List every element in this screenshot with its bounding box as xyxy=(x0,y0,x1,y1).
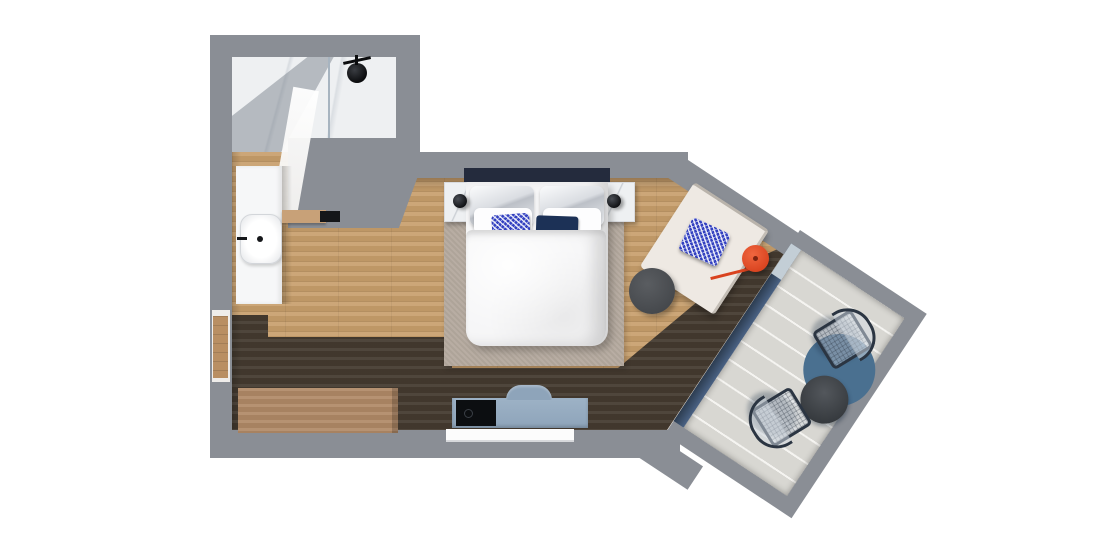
bed-headboard xyxy=(464,168,610,183)
bedside-lamp-right xyxy=(607,194,621,208)
chaise-blue-pillow xyxy=(678,217,731,267)
wall-bathroom-top xyxy=(210,35,420,57)
wall-bottom xyxy=(210,430,680,458)
washbasin xyxy=(240,214,282,264)
ottoman xyxy=(629,268,675,314)
bedside-lamp-left xyxy=(453,194,467,208)
vanity-counter-shadow xyxy=(282,166,292,304)
floor-plan xyxy=(0,0,1100,550)
desk-chair xyxy=(506,385,552,400)
floor-lamp-red xyxy=(742,245,769,272)
shelf-item xyxy=(320,211,340,222)
window-sill xyxy=(446,429,574,442)
entry-door xyxy=(213,316,228,378)
wardrobe xyxy=(238,388,398,433)
desk-black-object xyxy=(456,400,496,426)
shower-glass-partition xyxy=(328,57,330,152)
bed-duvet xyxy=(466,230,606,346)
wall-left xyxy=(210,35,232,458)
rain-shower-head-icon xyxy=(347,63,367,83)
